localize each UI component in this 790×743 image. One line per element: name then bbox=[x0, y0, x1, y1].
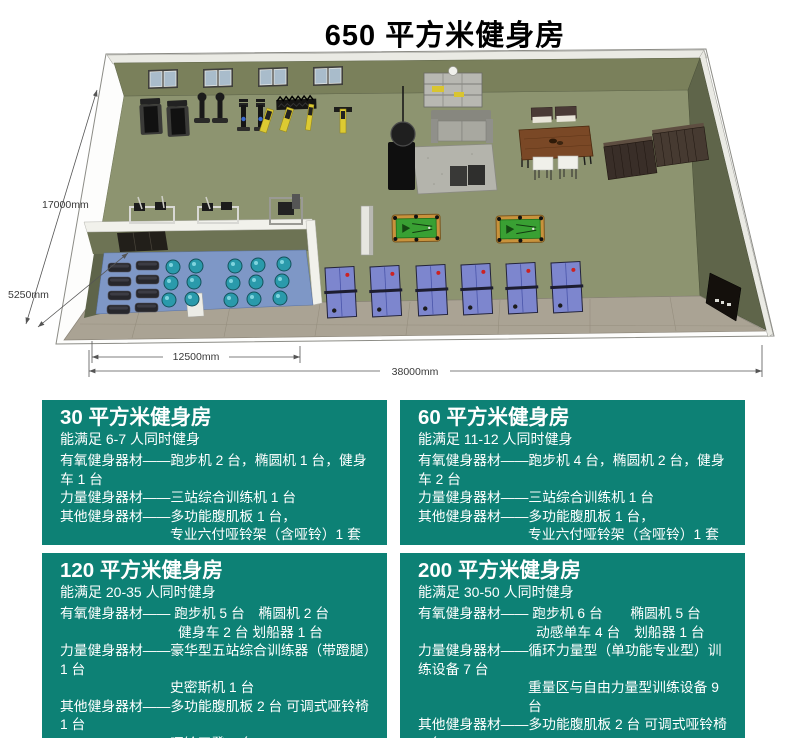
pool-table bbox=[496, 215, 544, 243]
pingpong-table bbox=[323, 266, 359, 318]
exercise-ball bbox=[226, 276, 240, 290]
pingpong-table bbox=[368, 265, 404, 317]
yoga-mat bbox=[107, 305, 130, 314]
chair bbox=[555, 106, 577, 122]
chair bbox=[531, 107, 553, 123]
card-60sqm: 60 平方米健身房 能满足 11-12 人同时健身 有氧健身器材——跑步机 4 … bbox=[400, 400, 745, 545]
card-line: 其他健身器材——多功能腹肌板 1 台， bbox=[60, 508, 377, 527]
window bbox=[203, 68, 233, 88]
card-line: 重量区与自由力量型训练设备 9 台 bbox=[418, 679, 735, 716]
pingpong-table bbox=[504, 262, 540, 314]
window bbox=[258, 67, 288, 87]
exercise-ball bbox=[187, 275, 201, 289]
treadmill bbox=[139, 98, 163, 135]
studio-door bbox=[117, 231, 168, 252]
card-line: 哑铃平凳 1 台 bbox=[60, 735, 377, 739]
card-line: 有氧健身器材——跑步机 4 台，椭圆机 2 台，健身车 2 台 bbox=[418, 452, 735, 489]
yoga-mat bbox=[136, 261, 159, 270]
exercise-ball bbox=[228, 259, 242, 273]
pingpong-table bbox=[549, 261, 585, 313]
yoga-mat bbox=[135, 303, 158, 312]
pingpong-table bbox=[414, 264, 450, 316]
card-subtitle: 能满足 6-7 人同时健身 bbox=[60, 430, 377, 448]
card-line: 力量健身器材——三站综合训练机 1 台 bbox=[418, 489, 735, 508]
exercise-ball bbox=[189, 259, 203, 273]
card-line: 专业六付哑铃架（含哑铃）1 套 bbox=[60, 526, 377, 545]
card-line: 有氧健身器材—— 跑步机 5 台 椭圆机 2 台 bbox=[60, 605, 377, 624]
studio-room bbox=[84, 219, 322, 318]
exercise-ball bbox=[247, 292, 261, 306]
yoga-mat bbox=[136, 289, 159, 298]
card-line: 其他健身器材——多功能腹肌板 2 台 可调式哑铃椅 1 台 bbox=[418, 716, 735, 738]
card-line: 健身车 2 台 划船器 1 台 bbox=[60, 624, 377, 643]
card-line: 可调式哑铃椅 1 台 bbox=[60, 545, 377, 546]
dim-label-depth: 17000mm bbox=[42, 199, 89, 211]
card-line: 其他健身器材——多功能腹肌板 2 台 可调式哑铃椅 1 台 bbox=[60, 698, 377, 735]
card-line: 动感单车 4 台 划船器 1 台 bbox=[418, 624, 735, 643]
exercise-ball bbox=[277, 257, 291, 271]
exercise-ball bbox=[185, 292, 199, 306]
card-line: 专业六付哑铃架（含哑铃）1 套 bbox=[418, 526, 735, 545]
exercise-ball bbox=[275, 274, 289, 288]
card-line: 其他健身器材——多功能腹肌板 1 台， bbox=[418, 508, 735, 527]
dim-label-width: 38000mm bbox=[392, 366, 439, 378]
card-title: 60 平方米健身房 bbox=[418, 406, 735, 430]
exercise-ball bbox=[166, 260, 180, 274]
back-wall bbox=[114, 58, 700, 96]
pingpong-table bbox=[459, 263, 495, 315]
sofa bbox=[431, 110, 493, 143]
card-line: 力量健身器材——豪华型五站综合训练器（带蹬腿）1 台 bbox=[60, 642, 377, 679]
card-120sqm: 120 平方米健身房 能满足 20-35 人同时健身 有氧健身器材—— 跑步机 … bbox=[42, 553, 387, 738]
yoga-mat bbox=[136, 275, 159, 284]
card-30sqm: 30 平方米健身房 能满足 6-7 人同时健身 有氧健身器材——跑步机 2 台，… bbox=[42, 400, 387, 545]
card-title: 200 平方米健身房 bbox=[418, 559, 735, 583]
exercise-ball bbox=[273, 291, 287, 305]
card-subtitle: 能满足 11-12 人同时健身 bbox=[418, 430, 735, 448]
card-subtitle: 能满足 20-35 人同时健身 bbox=[60, 583, 377, 601]
floor-plan: 17000mm 5250mm 12500mm 38000mm bbox=[0, 0, 790, 398]
yoga-mat bbox=[108, 263, 131, 272]
card-line: 力量健身器材——循环力量型（单功能专业型）训练设备 7 台 bbox=[418, 642, 735, 679]
card-200sqm: 200 平方米健身房 能满足 30-50 人同时健身 有氧健身器材—— 跑步机 … bbox=[400, 553, 745, 738]
yoga-mat bbox=[108, 277, 131, 286]
exercise-ball bbox=[162, 293, 176, 307]
page: 650 平方米健身房 bbox=[0, 0, 790, 743]
card-title: 30 平方米健身房 bbox=[60, 406, 377, 430]
window bbox=[148, 69, 178, 89]
card-line: 有氧健身器材—— 跑步机 6 台 椭圆机 5 台 bbox=[418, 605, 735, 624]
exercise-ball bbox=[249, 275, 263, 289]
exercise-ball bbox=[164, 276, 178, 290]
exercise-ball bbox=[251, 258, 265, 272]
pool-table bbox=[392, 214, 440, 242]
card-title: 120 平方米健身房 bbox=[60, 559, 377, 583]
card-line: 力量健身器材——三站综合训练机 1 台 bbox=[60, 489, 377, 508]
dim-label-room-depth: 5250mm bbox=[8, 289, 49, 301]
card-line: 史密斯机 1 台 bbox=[60, 679, 377, 698]
info-cards: 30 平方米健身房 能满足 6-7 人同时健身 有氧健身器材——跑步机 2 台，… bbox=[42, 400, 745, 738]
treadmill bbox=[166, 100, 190, 137]
dim-label-room-width: 12500mm bbox=[173, 351, 220, 363]
window bbox=[313, 66, 343, 86]
exercise-ball bbox=[224, 293, 238, 307]
yoga-mat bbox=[108, 291, 131, 300]
card-line: 有氧健身器材——跑步机 2 台，椭圆机 1 台，健身车 1 台 bbox=[60, 452, 377, 489]
card-subtitle: 能满足 30-50 人同时健身 bbox=[418, 583, 735, 601]
exercise-platform bbox=[412, 144, 497, 194]
support-column bbox=[361, 206, 373, 255]
card-line: 可调式哑铃椅 1 台 bbox=[418, 545, 735, 546]
